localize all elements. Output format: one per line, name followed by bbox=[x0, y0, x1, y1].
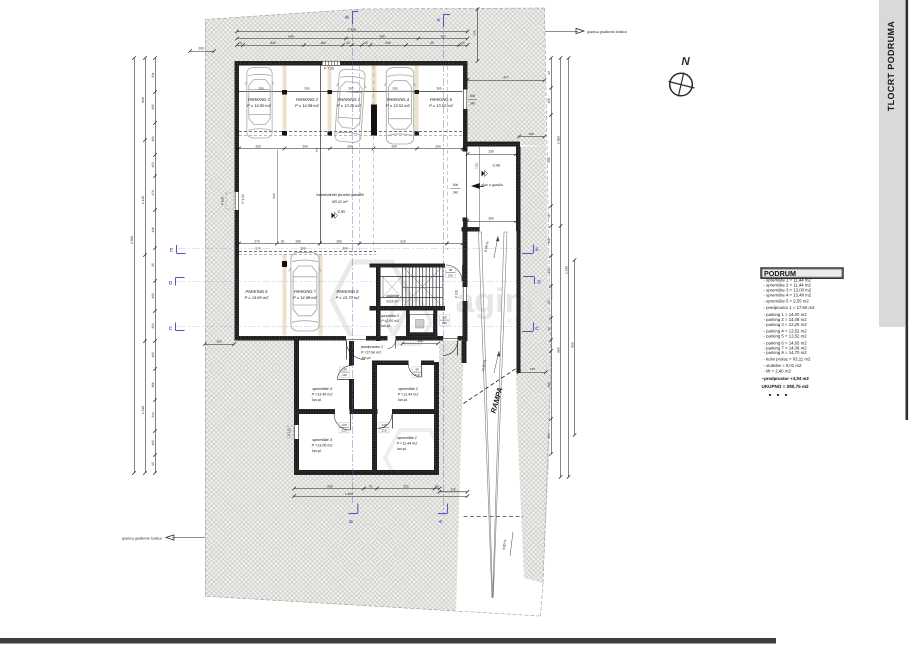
svg-text:660: 660 bbox=[556, 347, 560, 353]
svg-text:771: 771 bbox=[315, 147, 319, 152]
svg-text:270: 270 bbox=[254, 239, 260, 243]
svg-text:spremište 5: spremište 5 bbox=[381, 314, 400, 318]
svg-text:P = 14.08 m2: P = 14.08 m2 bbox=[295, 103, 320, 108]
svg-text:918: 918 bbox=[400, 239, 406, 243]
svg-text:75: 75 bbox=[369, 484, 373, 488]
svg-text:650: 650 bbox=[570, 342, 574, 348]
svg-text:PARKING 8: PARKING 8 bbox=[336, 289, 359, 294]
svg-text:49: 49 bbox=[547, 327, 551, 331]
svg-text:−predprostor +4,84 m2: −predprostor +4,84 m2 bbox=[762, 376, 810, 381]
svg-text:560: 560 bbox=[272, 193, 276, 198]
svg-text:280: 280 bbox=[258, 87, 263, 91]
svg-text:N: N bbox=[681, 56, 690, 68]
svg-text:280: 280 bbox=[336, 239, 342, 243]
svg-text:P 120: P 120 bbox=[288, 428, 292, 436]
svg-text:1 860: 1 860 bbox=[556, 136, 560, 144]
svg-text:102: 102 bbox=[547, 238, 551, 244]
svg-text:25: 25 bbox=[346, 41, 350, 45]
svg-text:60.11 m²: 60.11 m² bbox=[332, 199, 348, 204]
svg-text:100: 100 bbox=[151, 293, 155, 299]
svg-text:130: 130 bbox=[342, 368, 347, 372]
svg-text:707: 707 bbox=[440, 34, 446, 38]
svg-text:P = 13.52 m2: P = 13.52 m2 bbox=[429, 103, 454, 108]
svg-text:P 120: P 120 bbox=[455, 290, 459, 298]
svg-text:P = 14.00 m2: P = 14.00 m2 bbox=[247, 103, 272, 108]
svg-text:321: 321 bbox=[151, 72, 155, 78]
svg-text:P =11,44 m2: P =11,44 m2 bbox=[398, 393, 419, 397]
svg-text:358: 358 bbox=[417, 339, 422, 343]
svg-text:100: 100 bbox=[547, 433, 551, 439]
svg-text:25: 25 bbox=[238, 41, 242, 45]
svg-text:322: 322 bbox=[151, 323, 155, 329]
svg-text:222: 222 bbox=[403, 484, 409, 488]
svg-text:- predprostor 1 = 17,56 m2: - predprostor 1 = 17,56 m2 bbox=[764, 305, 816, 310]
svg-text:500: 500 bbox=[453, 183, 459, 187]
svg-text:P = 13.25 m2: P = 13.25 m2 bbox=[337, 103, 362, 108]
svg-text:ker.pl.: ker.pl. bbox=[362, 356, 371, 360]
svg-text:25: 25 bbox=[151, 263, 155, 267]
svg-text:280: 280 bbox=[300, 247, 305, 251]
svg-text:C: C bbox=[169, 326, 173, 332]
svg-text:818: 818 bbox=[141, 97, 145, 103]
svg-text:91: 91 bbox=[547, 214, 551, 218]
svg-text:549: 549 bbox=[288, 34, 294, 38]
svg-text:500: 500 bbox=[547, 157, 551, 163]
svg-text:470: 470 bbox=[151, 190, 155, 196]
svg-text:280: 280 bbox=[342, 247, 347, 251]
svg-text:P =11,44 m2: P =11,44 m2 bbox=[397, 442, 418, 446]
svg-text:110: 110 bbox=[442, 316, 447, 320]
svg-text:P =13,00 m2: P =13,00 m2 bbox=[312, 444, 333, 448]
svg-text:200: 200 bbox=[255, 144, 261, 148]
svg-text:granica građevne čestice: granica građevne čestice bbox=[587, 30, 627, 34]
svg-text:PARKING 2: PARKING 2 bbox=[296, 97, 319, 102]
svg-text:2 568: 2 568 bbox=[130, 236, 134, 244]
svg-text:9.01 m²: 9.01 m² bbox=[386, 300, 399, 304]
svg-text:180: 180 bbox=[320, 41, 326, 45]
svg-text:1 536: 1 536 bbox=[564, 266, 568, 274]
svg-text:200: 200 bbox=[216, 340, 221, 344]
svg-text:210: 210 bbox=[381, 428, 386, 432]
svg-text:PARKING 3: PARKING 3 bbox=[338, 97, 361, 102]
svg-text:P = 14.08 m2: P = 14.08 m2 bbox=[293, 295, 318, 300]
svg-text:280: 280 bbox=[348, 87, 353, 91]
svg-text:PARKING 1: PARKING 1 bbox=[248, 97, 270, 102]
svg-text:530: 530 bbox=[385, 41, 391, 45]
svg-text:130: 130 bbox=[341, 423, 346, 427]
svg-text:PARKING 6: PARKING 6 bbox=[245, 289, 268, 294]
svg-text:spremište 1: spremište 1 bbox=[397, 436, 417, 440]
svg-text:280: 280 bbox=[304, 87, 309, 91]
svg-text:280: 280 bbox=[436, 87, 441, 91]
svg-text:UKUPNO = 280,75 m2: UKUPNO = 280,75 m2 bbox=[762, 384, 810, 389]
svg-text:100: 100 bbox=[151, 352, 155, 358]
svg-text:P = 14.70 m2: P = 14.70 m2 bbox=[336, 295, 361, 300]
svg-text:-2.95: -2.95 bbox=[337, 210, 346, 214]
svg-text:240: 240 bbox=[470, 102, 476, 106]
svg-text:95: 95 bbox=[151, 462, 155, 466]
svg-text:P = 13.52 m2: P = 13.52 m2 bbox=[386, 103, 411, 108]
svg-text:270: 270 bbox=[255, 247, 260, 251]
svg-text:ker.pl.: ker.pl. bbox=[398, 398, 408, 402]
svg-text:294: 294 bbox=[302, 144, 308, 148]
svg-text:294: 294 bbox=[347, 144, 353, 148]
svg-text:25: 25 bbox=[364, 41, 368, 45]
svg-text:ker.pl.: ker.pl. bbox=[312, 398, 322, 402]
svg-text:P =13,49 m2: P =13,49 m2 bbox=[312, 393, 333, 397]
svg-text:- spremište 5 = 2,55 m2: - spremište 5 = 2,55 m2 bbox=[764, 298, 810, 303]
svg-text:294: 294 bbox=[391, 144, 397, 148]
svg-text:100: 100 bbox=[151, 136, 155, 142]
svg-text:280: 280 bbox=[295, 239, 301, 243]
svg-text:P =2,55 m2: P =2,55 m2 bbox=[381, 319, 399, 323]
svg-text:spremište 3: spremište 3 bbox=[312, 438, 333, 442]
svg-text:690: 690 bbox=[327, 484, 333, 488]
svg-text:500: 500 bbox=[470, 94, 476, 98]
svg-text:100: 100 bbox=[547, 98, 551, 104]
svg-text:spremište 2: spremište 2 bbox=[398, 387, 419, 391]
svg-text:C: C bbox=[535, 326, 539, 332]
svg-text:1 436: 1 436 bbox=[348, 27, 356, 31]
svg-text:D: D bbox=[169, 281, 173, 287]
svg-text:210: 210 bbox=[547, 268, 551, 274]
svg-text:- lift = 2,46 m2: - lift = 2,46 m2 bbox=[764, 368, 792, 373]
svg-text:228: 228 bbox=[442, 321, 447, 325]
svg-text:P = 14.65 m2: P = 14.65 m2 bbox=[245, 295, 270, 300]
svg-text:210: 210 bbox=[414, 373, 419, 377]
svg-text:294: 294 bbox=[435, 144, 441, 148]
svg-text:P 7.20: P 7.20 bbox=[324, 67, 334, 71]
svg-text:PARKING 7: PARKING 7 bbox=[294, 289, 317, 294]
svg-text:110: 110 bbox=[342, 373, 347, 377]
svg-text:P 1.50: P 1.50 bbox=[241, 194, 245, 203]
svg-text:- parking 5 = 13,52 m2: - parking 5 = 13,52 m2 bbox=[764, 334, 808, 339]
svg-text:- parking 8 = 14,70 m2: - parking 8 = 14,70 m2 bbox=[764, 350, 808, 355]
svg-text:ker.pl.: ker.pl. bbox=[397, 447, 407, 451]
svg-text:200: 200 bbox=[198, 47, 204, 51]
svg-text:100: 100 bbox=[528, 132, 533, 136]
svg-text:300: 300 bbox=[488, 217, 494, 221]
svg-text:1 460: 1 460 bbox=[345, 492, 353, 496]
svg-text:spremište 4: spremište 4 bbox=[312, 387, 332, 391]
svg-text:PARKING 4: PARKING 4 bbox=[387, 97, 410, 102]
svg-text:180: 180 bbox=[379, 34, 385, 38]
svg-text:240: 240 bbox=[453, 191, 459, 195]
svg-text:1 318: 1 318 bbox=[141, 406, 145, 414]
svg-text:predprostor 1: predprostor 1 bbox=[360, 345, 383, 349]
svg-text:stubište: stubište bbox=[386, 294, 399, 298]
svg-text:25: 25 bbox=[430, 41, 434, 45]
svg-text:1.53: 1.53 bbox=[475, 163, 479, 169]
svg-text:PARKING 5: PARKING 5 bbox=[430, 97, 453, 102]
svg-text:366: 366 bbox=[151, 382, 155, 388]
svg-text:- parking 3 = 13,25 m2: - parking 3 = 13,25 m2 bbox=[764, 322, 808, 327]
svg-text:25: 25 bbox=[461, 41, 465, 45]
svg-text:100: 100 bbox=[547, 382, 551, 388]
svg-text:ker.pl.: ker.pl. bbox=[312, 449, 322, 453]
svg-text:D: D bbox=[537, 280, 541, 286]
svg-text:25: 25 bbox=[281, 239, 285, 243]
svg-text:1 148: 1 148 bbox=[141, 196, 145, 204]
svg-text:305: 305 bbox=[151, 104, 155, 110]
svg-text:210: 210 bbox=[341, 428, 346, 432]
svg-text:92: 92 bbox=[547, 71, 551, 75]
svg-text:325: 325 bbox=[270, 41, 276, 45]
svg-text:-2.95: -2.95 bbox=[492, 164, 500, 168]
svg-text:- spremište 4 = 13,49 m2: - spremište 4 = 13,49 m2 bbox=[764, 292, 812, 297]
svg-text:477: 477 bbox=[503, 76, 509, 80]
svg-text:236: 236 bbox=[473, 30, 477, 35]
svg-text:244: 244 bbox=[151, 412, 155, 418]
svg-text:175: 175 bbox=[450, 488, 456, 492]
svg-text:P 100: P 100 bbox=[221, 197, 225, 205]
svg-text:ker.pl.: ker.pl. bbox=[381, 324, 390, 328]
svg-text:150: 150 bbox=[530, 367, 535, 371]
svg-text:manevarski prostor garaže: manevarski prostor garaže bbox=[316, 192, 364, 197]
svg-text:210: 210 bbox=[448, 273, 453, 277]
svg-text:230: 230 bbox=[488, 150, 494, 154]
svg-text:100: 100 bbox=[151, 440, 155, 446]
svg-text:granica građevne čestice: granica građevne čestice bbox=[122, 537, 162, 541]
svg-text:- kolni prolaz = 93,11 m2: - kolni prolaz = 93,11 m2 bbox=[764, 357, 811, 362]
svg-text:TLOCRT PODRUMA: TLOCRT PODRUMA bbox=[886, 21, 896, 112]
svg-text:130: 130 bbox=[381, 423, 386, 427]
svg-text:146: 146 bbox=[151, 227, 155, 233]
svg-text:ulaz u garažu: ulaz u garažu bbox=[481, 183, 503, 187]
svg-text:90: 90 bbox=[449, 268, 453, 272]
svg-text:25: 25 bbox=[435, 484, 439, 488]
svg-text:45: 45 bbox=[547, 300, 551, 304]
svg-text:p r e m i u m: p r e m i u m bbox=[508, 315, 553, 324]
svg-text:90: 90 bbox=[415, 368, 419, 372]
svg-text:P =17,56 m2: P =17,56 m2 bbox=[361, 351, 381, 355]
svg-text:152: 152 bbox=[151, 162, 155, 168]
svg-text:280: 280 bbox=[392, 87, 397, 91]
